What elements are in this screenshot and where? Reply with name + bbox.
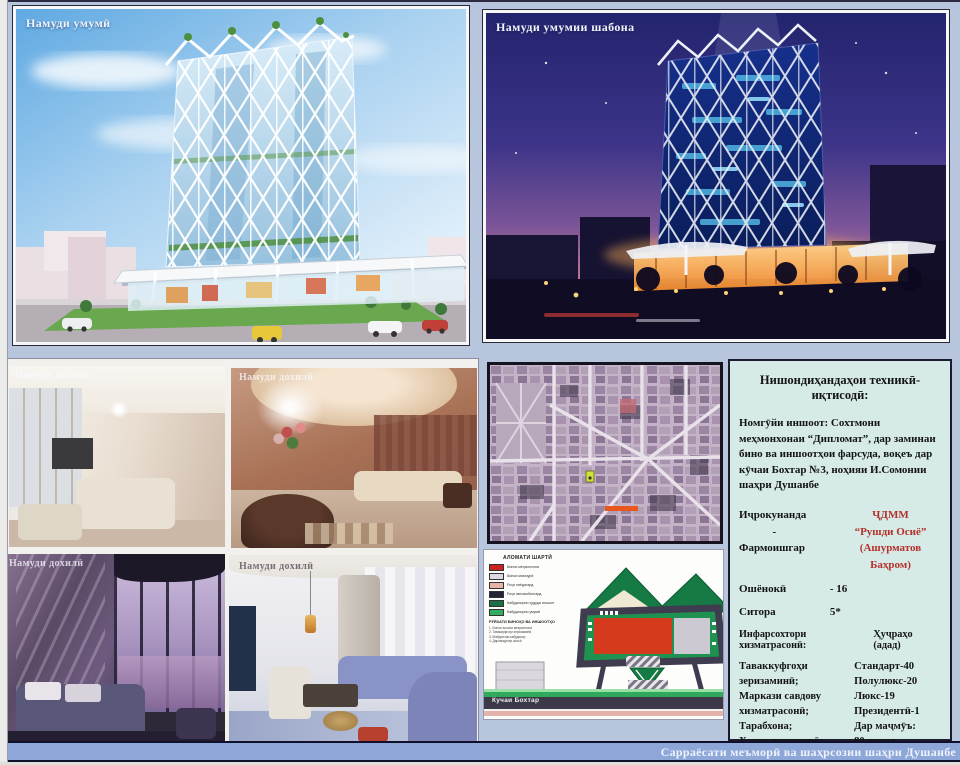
day-render-image: Намуди умумӣ [16,9,466,342]
interior-caption-2: Намуди дохилӣ [239,372,313,383]
interior-photo-lobby: Намуди дохилӣ [231,368,477,548]
interior-caption-1: Намуди дохилӣ [15,370,89,381]
infra-label: Инфарсохтори хизматрасонӣ: [739,629,873,651]
site-plan-drawing [484,550,723,719]
stars-value: 5* [830,606,841,618]
interior-photo-bedroom: Намуди дохилӣ [3,554,225,751]
stars-row: Ситора 5* [739,606,941,618]
night-render-caption: Намуди умумии шабона [496,20,634,35]
floors-row: Ошёнокӣ - 16 [739,583,941,595]
hotel-footprint [594,618,672,654]
night-render-illustration [486,13,946,339]
interior-caption-4: Намуди дохилӣ [239,561,313,572]
site-plan-panel: АЛОМАТИ ШАРТӢ Бинои меҳмонхона Бинои маъ… [483,549,724,720]
street-name-label: Кучаи Бохтар [492,697,539,704]
photo-of-presentation-board: Намуди умумӣ [0,0,960,765]
executor-value-1: ҶДММ [840,507,941,524]
interior-collage-panel: Намуди дохилӣ Намуди дохилӣ [2,358,479,753]
executor-client-block: Иҷрокунанда - Фармоишгар ҶДММ “Рушди Оси… [739,507,941,573]
client-value: (Ашурматов Баҳром) [840,540,941,573]
rooms-label: Ҳуҷраҳо (адад) [873,629,941,651]
satellite-map [490,365,720,541]
night-render-panel: Намуди умумии шабона [482,9,950,343]
floors-label: Ошёнокӣ [739,583,830,595]
day-render-panel: Намуди умумӣ [12,5,470,346]
satellite-map-panel [487,362,723,544]
object-description: Номгӯйи иншоот: Сохтмони меҳмонхонаи “Ди… [739,416,941,494]
interior-photo-living-room: Намуди дохилӣ [9,366,225,547]
client-label: Фармоишгар [739,540,840,557]
info-title: Нишондиҳандаҳои техникӣ-иқтисодӣ: [739,373,941,403]
night-render-image: Намуди умумии шабона [486,13,946,339]
interior-caption-3: Намуди дохилӣ [9,558,83,569]
interior-photo-suite-lounge: Намуди дохилӣ [229,555,477,750]
technical-indicators-panel: Нишондиҳандаҳои техникӣ-иқтисодӣ: Номгӯй… [728,359,952,741]
board-footer-bar: Сарраёсати меъморӣ ва шаҳрсозии шаҳри Ду… [8,741,960,762]
day-render-caption: Намуди умумӣ [26,16,110,31]
day-render-illustration [16,9,466,342]
executor-value-2: “Рушди Осиё” [840,524,941,541]
footer-text: Сарраёсати меъморӣ ва шаҳрсозии шаҳри Ду… [661,745,956,759]
site-location-marker [605,506,638,511]
stars-label: Ситора [739,606,830,618]
executor-label: Иҷрокунанда [739,507,840,524]
infra-header: Инфарсохтори хизматрасонӣ: Ҳуҷраҳо (адад… [739,629,941,651]
floors-value: - 16 [830,583,847,595]
dash: - [739,524,810,541]
photo-edge-left [0,0,8,765]
